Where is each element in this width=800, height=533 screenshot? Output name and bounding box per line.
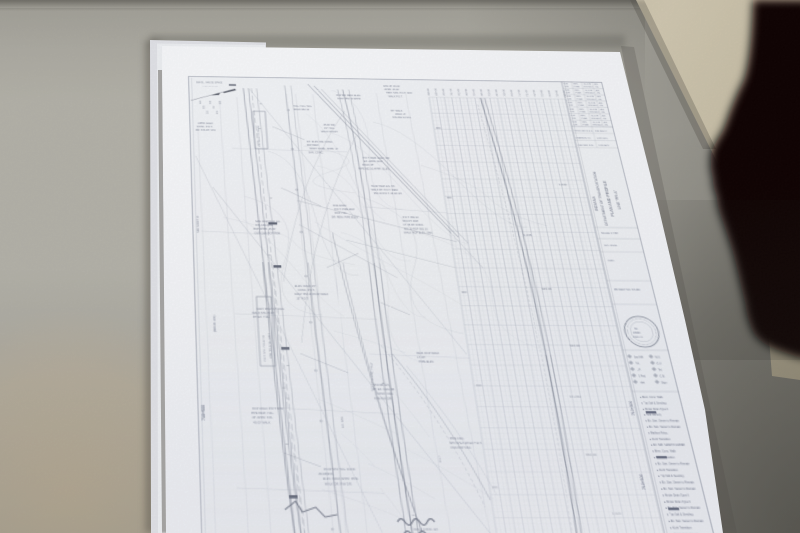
svg-text:R/W ADJ: R/W ADJ <box>584 85 593 88</box>
svg-text:PLAN: PLAN <box>575 92 582 95</box>
svg-text:● Under Drain Type II: ● Under Drain Type II <box>662 493 690 497</box>
svg-text:J.M.: J.M. <box>601 112 606 114</box>
svg-text:- ---- --- -- ----: - ---- --- -- ---- <box>203 86 219 88</box>
svg-text:PLAN: PLAN <box>580 111 587 114</box>
svg-text:705+00: 705+00 <box>480 88 484 96</box>
svg-text:321: 321 <box>207 110 209 114</box>
svg-text:R/W ADJ: R/W ADJ <box>588 104 598 107</box>
svg-text:1-99: 1-99 <box>565 92 571 94</box>
svg-text:700+00: 700+00 <box>443 88 446 96</box>
svg-text:L.P.: L.P. <box>636 369 642 371</box>
svg-text:J.M.: J.M. <box>596 93 601 95</box>
svg-text:● Rem. Conc. Walk: ● Rem. Conc. Walk <box>652 450 677 454</box>
svg-text:● Ex. San. Sewer to Remain: ● Ex. San. Sewer to Remain <box>651 443 687 447</box>
svg-text:C&G C&G RCP REM.: C&G C&G RCP REM. <box>254 233 281 235</box>
svg-text:WALK P.O.T.: WALK P.O.T. <box>388 95 403 98</box>
svg-text:● Top Soil & Seeding: ● Top Soil & Seeding <box>641 401 668 405</box>
svg-text:RCP APPR. 45.00': RCP APPR. 45.00' <box>253 228 276 231</box>
svg-text:● Curb Transition: ● Curb Transition <box>670 526 694 530</box>
svg-text:468: 468 <box>210 100 212 104</box>
svg-text:EX. APPR. RCP: EX. APPR. RCP <box>364 160 384 163</box>
svg-text:J.M.: J.M. <box>595 86 600 88</box>
svg-text:711+00: 711+00 <box>526 89 530 97</box>
svg-text:WALK 952.10: WALK 952.10 <box>293 108 310 111</box>
svg-text:713+00: 713+00 <box>541 89 545 97</box>
svg-text:A.B.: A.B. <box>602 115 607 118</box>
svg-text:10/99 DES.: 10/99 DES. <box>597 138 609 140</box>
svg-text:F.H.: F.H. <box>635 363 641 365</box>
svg-text:960: 960 <box>447 197 453 200</box>
svg-text:● Curb Transition: ● Curb Transition <box>649 437 672 441</box>
svg-text:RCP 710+: RCP 710+ <box>335 213 348 215</box>
svg-text:1-99: 1-99 <box>568 105 574 107</box>
svg-text:9-98: 9-98 <box>566 96 572 98</box>
svg-text:REV.: REV. <box>581 115 587 117</box>
svg-text:R/W ADJ: R/W ADJ <box>587 98 597 101</box>
svg-text:A.B.: A.B. <box>594 83 599 86</box>
svg-text:CONC. P.O.T.: CONC. P.O.T. <box>197 126 213 128</box>
svg-text:● Ex. San. Sewer to Remain: ● Ex. San. Sewer to Remain <box>659 481 696 485</box>
svg-text:APPR. ELEV.: APPR. ELEV. <box>198 122 214 125</box>
svg-text:1,035: 1,035 <box>523 233 532 237</box>
svg-text:PLAN: PLAN <box>583 123 590 126</box>
svg-text:● Rem. Conc. Walk: ● Rem. Conc. Walk <box>640 396 665 400</box>
svg-text:● Ex. San. Sewer to Remain: ● Ex. San. Sewer to Remain <box>665 506 702 510</box>
svg-text:9-98: 9-98 <box>569 109 575 111</box>
svg-text:SEE SHEET 11: SEE SHEET 11 <box>196 215 200 233</box>
svg-text:10-4-99: 10-4-99 <box>591 115 600 117</box>
svg-text:PROJECT NO. ST-209: PROJECT NO. ST-209 <box>614 289 641 291</box>
svg-text:REM. SAN. P.O.T. R/W: REM. SAN. P.O.T. R/W <box>386 92 413 95</box>
svg-text:J.M.: J.M. <box>599 105 604 107</box>
svg-text:PIPE 952.10 APPR. ELEV.: PIPE 952.10 APPR. ELEV. <box>358 167 390 170</box>
svg-text:A.B.: A.B. <box>597 96 602 99</box>
svg-text:A.B.: A.B. <box>598 102 603 105</box>
svg-text:R/W APPR.: R/W APPR. <box>333 204 348 207</box>
svg-text:714+00: 714+00 <box>548 89 552 97</box>
svg-text:12/99 APP.: 12/99 APP. <box>598 144 610 147</box>
svg-text:R/W ADJ: R/W ADJ <box>590 111 600 114</box>
svg-text:STA RT. RCP: STA RT. RCP <box>402 220 419 223</box>
svg-text:DESIGNED R.E.S.: DESIGNED R.E.S. <box>574 130 594 132</box>
svg-text:923: 923 <box>203 105 205 109</box>
svg-text:A.B.: A.B. <box>603 121 608 124</box>
svg-text:REV.: REV. <box>582 122 588 124</box>
svg-text:STA 952.10 STA: STA 952.10 STA <box>392 116 411 119</box>
svg-text:WALK 15": WALK 15" <box>362 164 374 167</box>
svg-text:APPR. 45.00': APPR. 45.00' <box>384 88 400 91</box>
svg-text:LT. 45.00' CONC.: LT. 45.00' CONC. <box>403 225 424 227</box>
svg-text:● Mailbox Reloc.: ● Mailbox Reloc. <box>648 431 669 435</box>
svg-text:1,040: 1,040 <box>558 182 567 186</box>
svg-text:LINE "PR-A": LINE "PR-A" <box>613 190 622 210</box>
svg-text:Inlet: Inlet <box>639 381 645 385</box>
svg-text:WALK RT. P.O.T. REM.: WALK RT. P.O.T. REM. <box>371 189 399 192</box>
svg-text:DRAWN M.T.K.: DRAWN M.T.K. <box>576 137 592 140</box>
svg-text:9-98: 9-98 <box>572 122 578 124</box>
svg-text:710+500: 710+500 <box>201 405 207 421</box>
svg-text:● Ex. San. Sewer to Remain: ● Ex. San. Sewer to Remain <box>655 462 691 466</box>
svg-text:9-98: 9-98 <box>568 102 574 104</box>
svg-text:698+00: 698+00 <box>428 88 431 96</box>
svg-text:ELEV. CONC. APPR. LT.: ELEV. CONC. APPR. LT. <box>310 148 339 151</box>
svg-text:A.B.: A.B. <box>595 89 600 92</box>
svg-text:J.M.: J.M. <box>604 125 609 127</box>
svg-text:P.O.T. PIPE RCP: P.O.T. PIPE RCP <box>334 209 355 211</box>
svg-text:BM EL. 948.35 SPIKE: BM EL. 948.35 SPIKE <box>196 82 222 84</box>
svg-text:SAN. CONC.: SAN. CONC. <box>308 151 324 154</box>
svg-text:R/W 15" 45.00': R/W 15" 45.00' <box>383 86 401 88</box>
svg-text:EX. ELEV. DR. CONC.: EX. ELEV. DR. CONC. <box>307 141 334 143</box>
svg-text:1-99: 1-99 <box>571 118 577 120</box>
svg-text:● Sod Nursery: ● Sod Nursery <box>644 413 663 417</box>
svg-text:704+00: 704+00 <box>473 88 477 96</box>
svg-text:● Top Soil & Seeding: ● Top Soil & Seeding <box>667 513 695 517</box>
svg-text:45.00' DR.: 45.00' DR. <box>323 125 336 127</box>
svg-text:952.10 RCP 952.10: 952.10 RCP 952.10 <box>404 228 429 230</box>
svg-text:No.: No. <box>634 328 639 330</box>
svg-text:SCALE: 1"=50': SCALE: 1"=50' <box>601 232 619 235</box>
svg-text:REV.: REV. <box>579 109 585 111</box>
svg-text:● Top Soil & Seeding: ● Top Soil & Seeding <box>658 474 686 478</box>
svg-text:+81: +81 <box>213 105 215 109</box>
svg-text:R/W ADJ: R/W ADJ <box>591 117 601 120</box>
svg-text:ELEV. 952.10 APPR.: ELEV. 952.10 APPR. <box>338 97 362 100</box>
svg-text:1-99: 1-99 <box>570 111 576 113</box>
svg-text:709+00: 709+00 <box>511 89 515 97</box>
svg-text:DES. ENGR.: DES. ENGR. <box>604 245 619 247</box>
svg-text:1-99: 1-99 <box>567 99 573 101</box>
svg-text:PLAN: PLAN <box>577 98 584 101</box>
svg-text:● Ex. San. Sewer to Remain: ● Ex. San. Sewer to Remain <box>645 419 681 423</box>
svg-text:15" 710+: 15" 710+ <box>324 128 335 130</box>
svg-text:1-99: 1-99 <box>564 86 570 88</box>
svg-text:10-4-99: 10-4-99 <box>592 122 601 124</box>
svg-text:10-4-99: 10-4-99 <box>589 109 598 111</box>
svg-text:PLAN: PLAN <box>574 85 581 88</box>
svg-text:C.B.: C.B. <box>660 376 666 378</box>
svg-text:E.Ped: E.Ped <box>638 376 647 378</box>
svg-text:P.O.T. REM. ELEV. DR.: P.O.T. REM. ELEV. DR. <box>363 158 391 160</box>
svg-text:DR. REM. PIPE ELEV.: DR. REM. PIPE ELEV. <box>332 217 360 219</box>
svg-text:STATE OF: STATE OF <box>633 335 644 338</box>
svg-text:PLAN: PLAN <box>581 117 588 120</box>
svg-text:SAN. RCP REM. EX.: SAN. RCP REM. EX. <box>255 220 281 223</box>
svg-text:699+00: 699+00 <box>435 88 438 96</box>
svg-text:CHKD.: CHKD. <box>607 260 615 262</box>
svg-text:19900: 19900 <box>633 333 642 335</box>
svg-text:710+00: 710+00 <box>518 89 522 97</box>
svg-text:R/W ADJ: R/W ADJ <box>585 92 594 95</box>
svg-text:A.B.: A.B. <box>600 108 605 111</box>
svg-text:WALK LT.: WALK LT. <box>395 113 407 116</box>
svg-text:Sign: Sign <box>661 382 668 384</box>
svg-text:● Ex. San. Sewer to Remain: ● Ex. San. Sewer to Remain <box>668 519 705 523</box>
svg-text:715+00: 715+00 <box>556 90 560 98</box>
svg-text:706+00: 706+00 <box>488 89 492 97</box>
svg-text:● Ex. San. Sewer to Remain: ● Ex. San. Sewer to Remain <box>661 487 698 491</box>
svg-text:708+00: 708+00 <box>503 89 507 97</box>
svg-text:703+00: 703+00 <box>465 88 469 96</box>
svg-text:973: 973 <box>217 110 219 114</box>
svg-text:710+ 710+ 710+: 710+ 710+ 710+ <box>293 106 313 108</box>
svg-text:960: 960 <box>436 127 442 130</box>
svg-text:702+00: 702+00 <box>458 88 462 96</box>
svg-text:REV.: REV. <box>576 96 582 98</box>
svg-text:WALK RCP ELEV. SAN.: WALK RCP ELEV. SAN. <box>404 231 434 234</box>
svg-text:Tel.: Tel. <box>658 369 663 371</box>
svg-text:CHECKED B.W.: CHECKED B.W. <box>577 145 594 147</box>
svg-text:REV.: REV. <box>578 102 584 104</box>
svg-text:● Curb Transition: ● Curb Transition <box>656 468 679 472</box>
svg-text:45.00' REM. EX. RT.: 45.00' REM. EX. RT. <box>371 186 396 188</box>
svg-text:701+00: 701+00 <box>450 88 454 96</box>
svg-text:● Curb Transition: ● Curb Transition <box>654 456 677 460</box>
svg-text:● Ex. San. Sewer to Remain: ● Ex. San. Sewer to Remain <box>646 425 682 429</box>
svg-text:952.10 P.O.T. 45.00' RT.: 952.10 P.O.T. 45.00' RT. <box>374 193 403 195</box>
svg-text:1-99: 1-99 <box>573 124 579 126</box>
svg-text:J.M.: J.M. <box>598 99 603 101</box>
svg-text:9-98: 9-98 <box>571 115 577 117</box>
svg-text:R/W ADJ: R/W ADJ <box>593 124 603 127</box>
svg-text:DR. STA RT. STA: DR. STA RT. STA <box>196 129 217 132</box>
svg-text:R/W REM.: R/W REM. <box>307 145 320 147</box>
svg-text:W.V.: W.V. <box>655 357 661 359</box>
svg-text:San.MH: San.MH <box>634 357 645 359</box>
svg-text:WALK STA RT.: WALK STA RT. <box>321 131 339 134</box>
svg-text:RT. WALK: RT. WALK <box>391 110 403 113</box>
svg-text:9/99 INDOT: 9/99 INDOT <box>595 131 608 133</box>
svg-text:P.O.T. 952.10: P.O.T. 952.10 <box>403 217 420 219</box>
svg-text:R/W DR. REM. ELEV.: R/W DR. REM. ELEV. <box>336 95 361 97</box>
svg-text:PLAN: PLAN <box>578 104 585 107</box>
svg-text:707+00: 707+00 <box>496 89 500 97</box>
svg-text:J.M.: J.M. <box>602 118 607 120</box>
svg-text:G.V.: G.V. <box>657 363 663 365</box>
svg-text:● Under Drain Type II: ● Under Drain Type II <box>664 500 692 504</box>
svg-text:● Under Drain Type II: ● Under Drain Type II <box>642 407 669 411</box>
svg-text:712+00: 712+00 <box>533 89 537 97</box>
svg-text:663: 663 <box>200 100 202 104</box>
svg-text:699: 699 <box>220 100 222 104</box>
